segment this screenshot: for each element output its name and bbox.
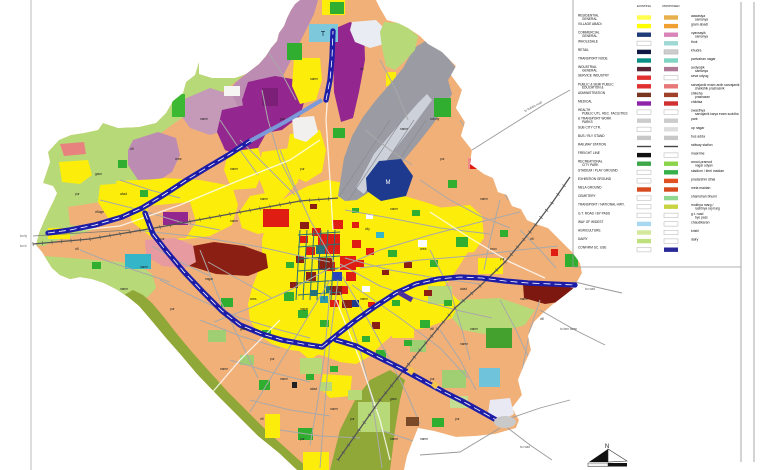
svg-text:gaon: gaon xyxy=(95,172,102,176)
svg-text:area: area xyxy=(420,247,427,251)
svg-text:MEDICAL: MEDICAL xyxy=(578,100,592,104)
svg-text:name: name xyxy=(230,167,238,171)
svg-text:mela maidan: mela maidan xyxy=(691,186,711,190)
svg-text:bus adda: bus adda xyxy=(691,134,705,138)
svg-text:to tarn taran: to tarn taran xyxy=(560,327,577,331)
svg-text:CEMETERY: CEMETERY xyxy=(578,194,597,198)
svg-text:BUS / RLY STAND: BUS / RLY STAND xyxy=(578,134,605,138)
svg-text:vill: vill xyxy=(75,247,79,251)
svg-text:prashasan: prashasan xyxy=(695,95,710,99)
svg-text:name: name xyxy=(420,437,428,441)
svg-text:TRANSPORT NODE: TRANSPORT NODE xyxy=(578,57,608,61)
svg-text:G.T. ROAD / BY PASS: G.T. ROAD / BY PASS xyxy=(578,211,610,215)
svg-text:nagar udyan: nagar udyan xyxy=(695,164,713,168)
svg-text:chikitsa: chikitsa xyxy=(691,100,702,104)
svg-text:nagar: nagar xyxy=(205,277,214,281)
svg-text:vill: vill xyxy=(360,67,364,71)
svg-text:CONFIRM SC. USE: CONFIRM SC. USE xyxy=(578,246,607,250)
svg-text:MELA GROUND: MELA GROUND xyxy=(578,186,602,190)
svg-text:name: name xyxy=(330,407,338,411)
svg-text:name: name xyxy=(310,77,318,81)
svg-text:ADMINISTRATION: ADMINISTRATION xyxy=(578,91,606,95)
svg-text:GENERAL: GENERAL xyxy=(582,17,597,21)
svg-text:name: name xyxy=(460,342,468,346)
svg-text:abad: abad xyxy=(460,287,467,291)
svg-text:EDUCATION &: EDUCATION & xyxy=(582,86,604,90)
svg-text:EXISTING: EXISTING xyxy=(637,4,652,8)
svg-text:abad: abad xyxy=(120,192,127,196)
svg-text:town: town xyxy=(490,247,497,251)
svg-text:to road: to road xyxy=(585,287,595,291)
svg-text:name: name xyxy=(520,297,528,301)
svg-text:GENERAL: GENERAL xyxy=(582,69,597,73)
svg-text:thok: thok xyxy=(691,40,698,44)
svg-text:dairy: dairy xyxy=(691,238,699,242)
svg-text:DAIRY: DAIRY xyxy=(578,237,589,241)
svg-text:AGRICULTURE: AGRICULTURE xyxy=(578,229,601,233)
svg-text:stadium / khel maidan: stadium / khel maidan xyxy=(691,169,724,173)
svg-text:area: area xyxy=(250,297,257,301)
svg-text:vill: vill xyxy=(540,317,544,321)
svg-text:railway station: railway station xyxy=(691,143,713,147)
svg-text:CITY PARK: CITY PARK xyxy=(582,163,599,167)
svg-text:SERVICE INDUSTRY: SERVICE INDUSTRY xyxy=(578,74,610,78)
svg-text:seva udyog: seva udyog xyxy=(691,74,708,78)
svg-text:name: name xyxy=(280,377,288,381)
svg-text:WAY OF WIDEST: WAY OF WIDEST xyxy=(578,220,603,224)
svg-text:M: M xyxy=(386,180,391,186)
svg-text:T: T xyxy=(321,31,326,38)
svg-text:maal line: maal line xyxy=(691,152,705,156)
svg-text:PUBLIC UTL. REC. FACILITIES: PUBLIC UTL. REC. FACILITIES xyxy=(582,112,628,116)
svg-text:to rd: to rd xyxy=(20,244,27,248)
svg-text:abad: abad xyxy=(310,387,317,391)
svg-text:samanya: samanya xyxy=(695,69,708,73)
svg-text:gaon: gaon xyxy=(390,397,397,401)
svg-text:N: N xyxy=(605,444,609,450)
svg-text:parivahan nagar: parivahan nagar xyxy=(691,57,716,61)
svg-text:VILLAGE ABADI: VILLAGE ABADI xyxy=(578,22,602,26)
svg-text:sarvajanik karya evam suvidha: sarvajanik karya evam suvidha xyxy=(695,112,739,116)
svg-text:name: name xyxy=(200,117,208,121)
svg-text:STADIUM / PLAY GROUND: STADIUM / PLAY GROUND xyxy=(578,168,618,172)
svg-text:RETAIL: RETAIL xyxy=(578,48,589,52)
svg-text:name: name xyxy=(390,437,398,441)
svg-text:vill: vill xyxy=(260,417,264,421)
svg-text:name: name xyxy=(220,367,228,371)
svg-text:name: name xyxy=(400,127,408,131)
svg-text:nagar: nagar xyxy=(300,307,309,311)
svg-text:name: name xyxy=(230,219,238,223)
svg-text:bye pass: bye pass xyxy=(695,215,708,219)
svg-text:area: area xyxy=(175,157,182,161)
svg-text:PROPOSED: PROPOSED xyxy=(662,4,680,8)
svg-text:shaikshik prashasnik: shaikshik prashasnik xyxy=(695,86,725,90)
svg-text:vill: vill xyxy=(430,327,434,331)
svg-text:krishi: krishi xyxy=(691,229,699,233)
svg-text:vill: vill xyxy=(530,237,534,241)
svg-text:pradarshni sthal: pradarshni sthal xyxy=(691,177,715,181)
svg-text:chaudikaran: chaudikaran xyxy=(691,220,710,224)
svg-text:name: name xyxy=(260,197,268,201)
svg-text:gaon: gaon xyxy=(240,327,247,331)
svg-text:gram abadi: gram abadi xyxy=(691,23,708,27)
svg-text:PARKS: PARKS xyxy=(582,120,593,124)
svg-text:village: village xyxy=(95,210,104,214)
svg-text:name: name xyxy=(470,327,478,331)
svg-text:SUB CITY CTR.: SUB CITY CTR. xyxy=(578,125,601,129)
svg-text:WHOLESALE: WHOLESALE xyxy=(578,39,598,43)
svg-text:RAILWAY STATION: RAILWAY STATION xyxy=(578,143,607,147)
svg-text:name: name xyxy=(360,297,368,301)
svg-text:rashtriya raj marg: rashtriya raj marg xyxy=(695,207,720,211)
svg-text:city: city xyxy=(365,227,370,231)
svg-text:samanya: samanya xyxy=(695,18,708,22)
svg-text:name: name xyxy=(140,265,148,269)
svg-text:to road: to road xyxy=(520,445,530,449)
svg-text:khudra: khudra xyxy=(691,48,701,52)
svg-text:to rly: to rly xyxy=(20,234,27,238)
svg-text:FREIGHT LINE: FREIGHT LINE xyxy=(578,151,600,155)
svg-text:name: name xyxy=(390,207,398,211)
svg-text:samanya: samanya xyxy=(695,35,708,39)
svg-text:name: name xyxy=(480,197,488,201)
svg-text:GENERAL: GENERAL xyxy=(582,34,597,38)
svg-text:EXHIBITION GROUND: EXHIBITION GROUND xyxy=(578,177,612,181)
svg-text:TRANSPORT / NATIONAL HWY.: TRANSPORT / NATIONAL HWY. xyxy=(578,203,625,207)
svg-text:up nagar: up nagar xyxy=(691,126,705,130)
svg-text:shamshan bhumi: shamshan bhumi xyxy=(691,195,717,199)
svg-text:park: park xyxy=(691,117,698,121)
svg-text:colony: colony xyxy=(430,117,440,121)
svg-text:name: name xyxy=(120,287,128,291)
svg-text:vill: vill xyxy=(130,147,134,151)
